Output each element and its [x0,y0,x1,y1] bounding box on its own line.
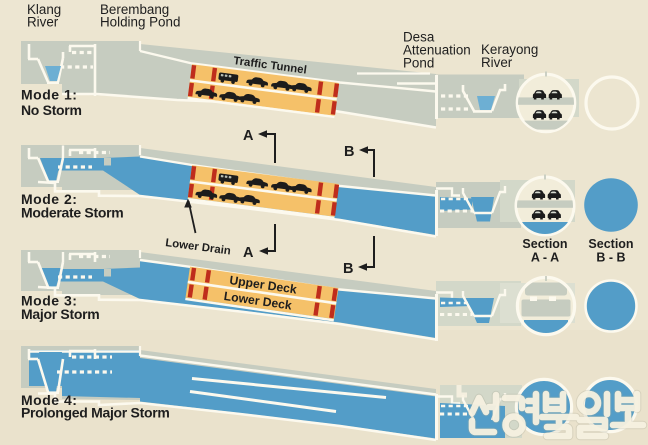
svg-text:River: River [481,55,513,70]
svg-text:Mode 1:: Mode 1: [21,87,77,103]
svg-text:Pond: Pond [403,56,434,71]
svg-text:B: B [344,144,354,160]
svg-text:Section: Section [522,237,567,251]
svg-text:Prolonged Major Storm: Prolonged Major Storm [21,405,170,421]
svg-text:Major Storm: Major Storm [21,306,99,322]
svg-text:Moderate Storm: Moderate Storm [21,205,123,221]
svg-text:No Storm: No Storm [21,102,82,118]
svg-text:Section: Section [588,237,633,251]
svg-text:A: A [243,245,254,261]
svg-text:B - B: B - B [596,251,625,265]
svg-text:A - A: A - A [531,251,559,265]
svg-text:B: B [343,261,353,277]
svg-text:A: A [243,128,254,144]
svg-text:Holding Pond: Holding Pond [100,15,180,30]
svg-text:River: River [27,15,59,30]
